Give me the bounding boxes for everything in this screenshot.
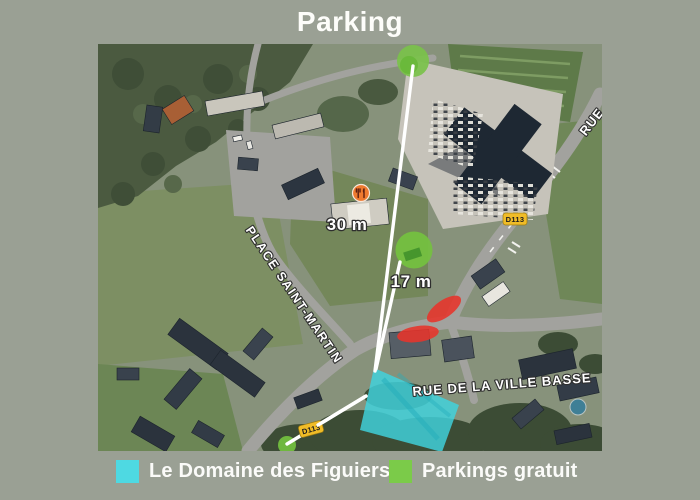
restaurant-icon bbox=[353, 185, 370, 202]
domaine-color-swatch bbox=[116, 460, 139, 483]
page-title: Parking bbox=[0, 6, 700, 38]
satellite-map: PLACE SAINT-MARTIN RUE DE LA VILLE BASSE… bbox=[98, 44, 602, 451]
d113-badge-main: D113 bbox=[503, 213, 527, 225]
parking-color-swatch bbox=[389, 460, 412, 483]
distance-label-30m: 30 m bbox=[327, 215, 368, 234]
legend-label-domaine: Le Domaine des Figuiers bbox=[149, 460, 390, 483]
parking-infographic: Parking bbox=[0, 0, 700, 500]
pool bbox=[570, 399, 586, 415]
d113-badge-main-text: D113 bbox=[506, 215, 525, 224]
distance-label-17m: 17 m bbox=[391, 272, 432, 291]
legend-label-parkings: Parkings gratuit bbox=[422, 460, 577, 483]
legend-item-domaine: Le Domaine des Figuiers bbox=[116, 458, 390, 484]
legend: Le Domaine des Figuiers Parkings gratuit bbox=[0, 458, 700, 488]
legend-item-parkings: Parkings gratuit bbox=[389, 458, 577, 484]
